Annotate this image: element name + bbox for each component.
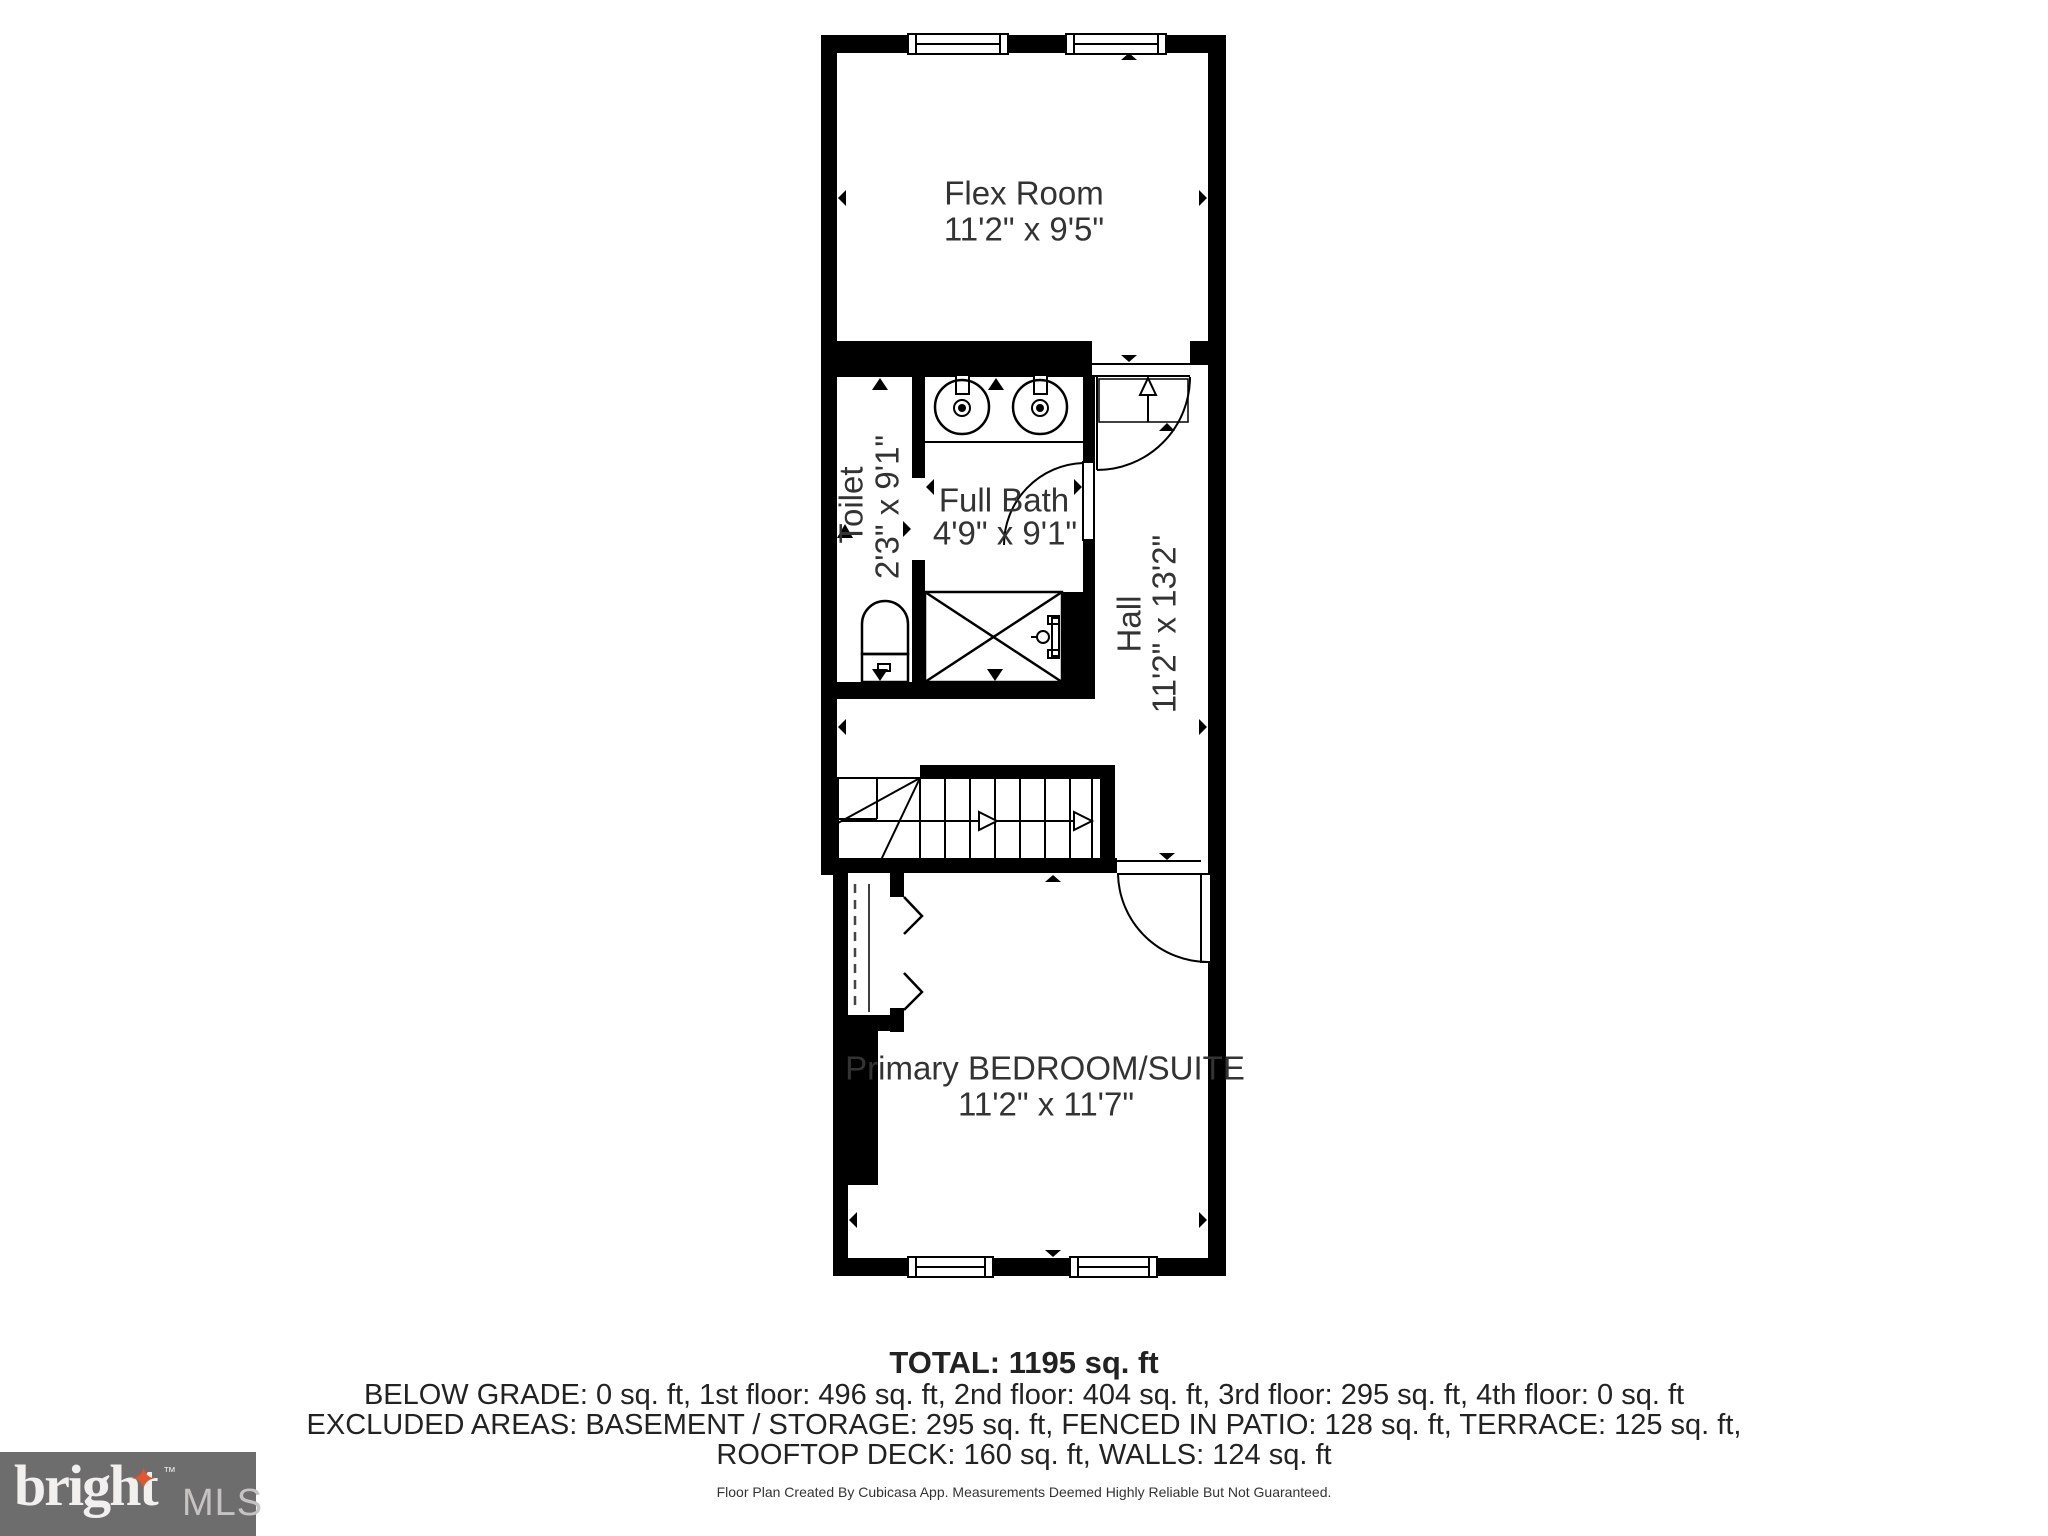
room-label-flex-name: Flex Room	[944, 175, 1104, 212]
window	[1070, 1257, 1157, 1277]
measure-arrow-left-icon	[838, 719, 846, 735]
room-label-hall-name: Hall	[1111, 596, 1148, 653]
room-labels: Flex Room 11'2" x 9'5" Toilet 2'3" x 9'1…	[833, 175, 1245, 1123]
window	[908, 34, 1008, 54]
measure-arrow-left-icon	[849, 1212, 857, 1228]
room-label-flex-dims: 11'2" x 9'5"	[944, 211, 1104, 248]
door-bedroom	[1117, 861, 1211, 962]
sink-right	[1013, 375, 1067, 434]
closet	[855, 884, 922, 1012]
stair-winder	[838, 778, 920, 860]
measure-arrow-down-icon	[987, 669, 1003, 681]
staircase	[838, 778, 1101, 860]
measure-arrow-right-icon	[1199, 190, 1207, 206]
shower-valve-icon	[1031, 616, 1059, 658]
excluded-areas: EXCLUDED AREAS: BASEMENT / STORAGE: 295 …	[0, 1410, 2048, 1440]
logo-mls-text: MLS	[182, 1482, 263, 1525]
room-label-toilet-dims: 2'3" x 9'1"	[869, 435, 906, 579]
measure-arrow-down-icon	[1159, 853, 1175, 860]
disclaimer-text: Floor Plan Created By Cubicasa App. Meas…	[0, 1484, 2048, 1500]
room-label-bedroom-dims: 11'2" x 11'7"	[958, 1086, 1134, 1123]
page: { "plan": { "rooms": [ {"id": "flex", "n…	[0, 0, 2048, 1536]
floor-plan: Flex Room 11'2" x 9'5" Toilet 2'3" x 9'1…	[0, 0, 2048, 1536]
measure-arrow-up-icon	[1045, 875, 1061, 882]
closet-bifold-doors	[904, 897, 922, 1010]
measure-arrow-down-icon	[1045, 1250, 1061, 1257]
room-label-bedroom-name: Primary BEDROOM/SUITE	[845, 1050, 1245, 1087]
door-flex-to-hall	[1092, 364, 1190, 470]
room-label-bath-dims: 4'9" x 9'1"	[933, 515, 1077, 552]
room-label-hall-dims: 11'2" x 13'2"	[1146, 535, 1183, 714]
measure-arrow-right-icon	[1074, 479, 1082, 495]
bright-mls-logo: bright ✦ ™ MLS	[0, 1452, 256, 1536]
trademark-symbol: ™	[163, 1464, 176, 1479]
measure-arrow-up-icon	[872, 378, 888, 390]
window	[1066, 34, 1166, 54]
window	[908, 1257, 993, 1277]
measure-arrow-right-icon	[1199, 719, 1207, 735]
excluded-areas-continued: ROOFTOP DECK: 160 sq. ft, WALLS: 124 sq.…	[0, 1440, 2048, 1470]
floor-areas: BELOW GRADE: 0 sq. ft, 1st floor: 496 sq…	[0, 1380, 2048, 1410]
room-label-bath-name: Full Bath	[939, 482, 1069, 519]
stair-direction-arrow-icon	[841, 812, 1092, 830]
measure-arrow-down-icon	[872, 669, 888, 681]
measure-arrow-up-icon	[988, 378, 1004, 390]
total-area: TOTAL: 1195 sq. ft	[0, 1347, 2048, 1378]
shower	[925, 592, 1062, 682]
sink-left	[935, 375, 989, 434]
measure-arrow-right-icon	[1199, 1212, 1207, 1228]
room-label-toilet-name: Toilet	[833, 466, 870, 543]
measure-arrow-up-icon	[1159, 423, 1175, 431]
measure-arrow-down-icon	[1121, 355, 1137, 362]
area-summary: TOTAL: 1195 sq. ft BELOW GRADE: 0 sq. ft…	[0, 1347, 2048, 1470]
measure-arrow-left-icon	[926, 479, 934, 495]
door-direction-arrow-icon	[1140, 378, 1156, 395]
measure-arrow-left-icon	[838, 190, 846, 206]
star-icon: ✦	[130, 1460, 157, 1498]
